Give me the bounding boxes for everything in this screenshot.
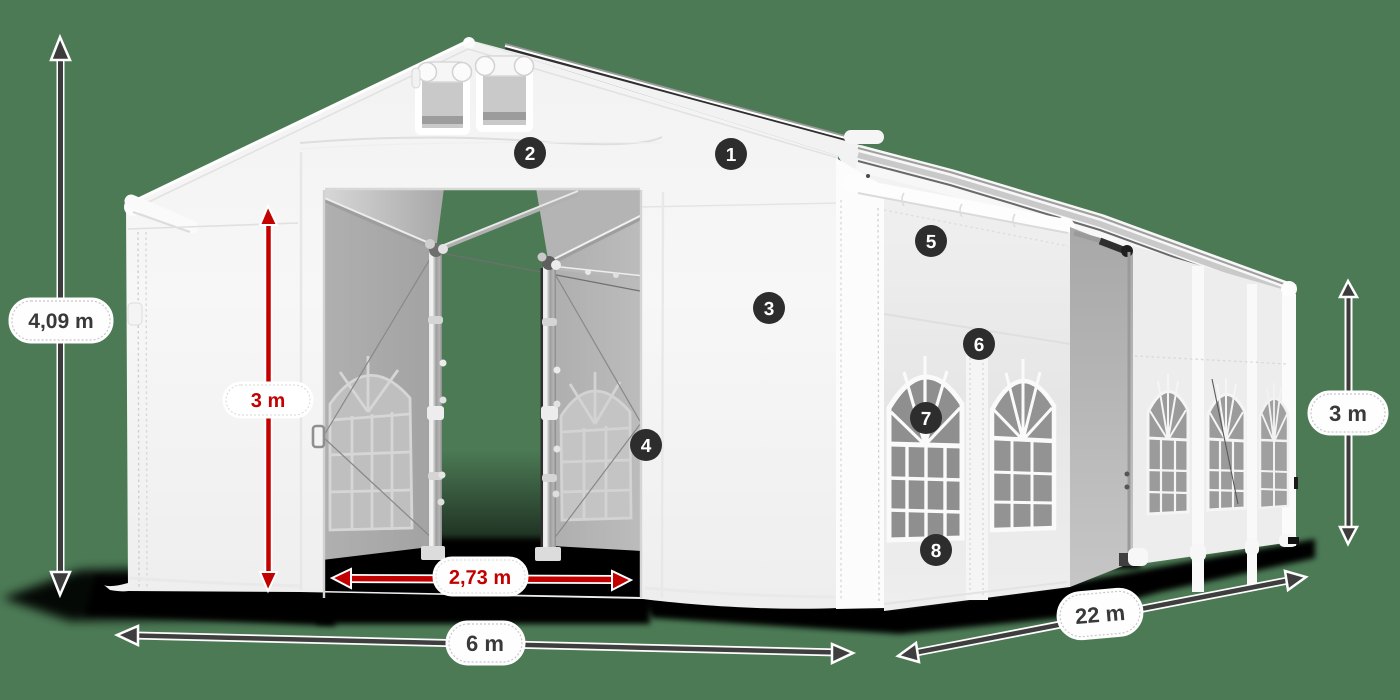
- svg-text:22 m: 22 m: [1074, 600, 1126, 629]
- svg-text:6 m: 6 m: [466, 631, 504, 656]
- svg-text:3: 3: [764, 299, 775, 320]
- svg-text:4: 4: [641, 436, 652, 457]
- svg-text:2: 2: [525, 144, 536, 165]
- svg-text:2,73 m: 2,73 m: [449, 567, 511, 589]
- svg-text:7: 7: [921, 409, 932, 430]
- svg-text:3 m: 3 m: [1329, 401, 1367, 426]
- svg-text:1: 1: [726, 145, 737, 166]
- svg-text:6: 6: [974, 335, 985, 356]
- svg-text:5: 5: [926, 232, 937, 253]
- svg-text:3 m: 3 m: [251, 390, 286, 412]
- svg-text:4,09 m: 4,09 m: [28, 310, 93, 333]
- svg-text:8: 8: [931, 541, 942, 562]
